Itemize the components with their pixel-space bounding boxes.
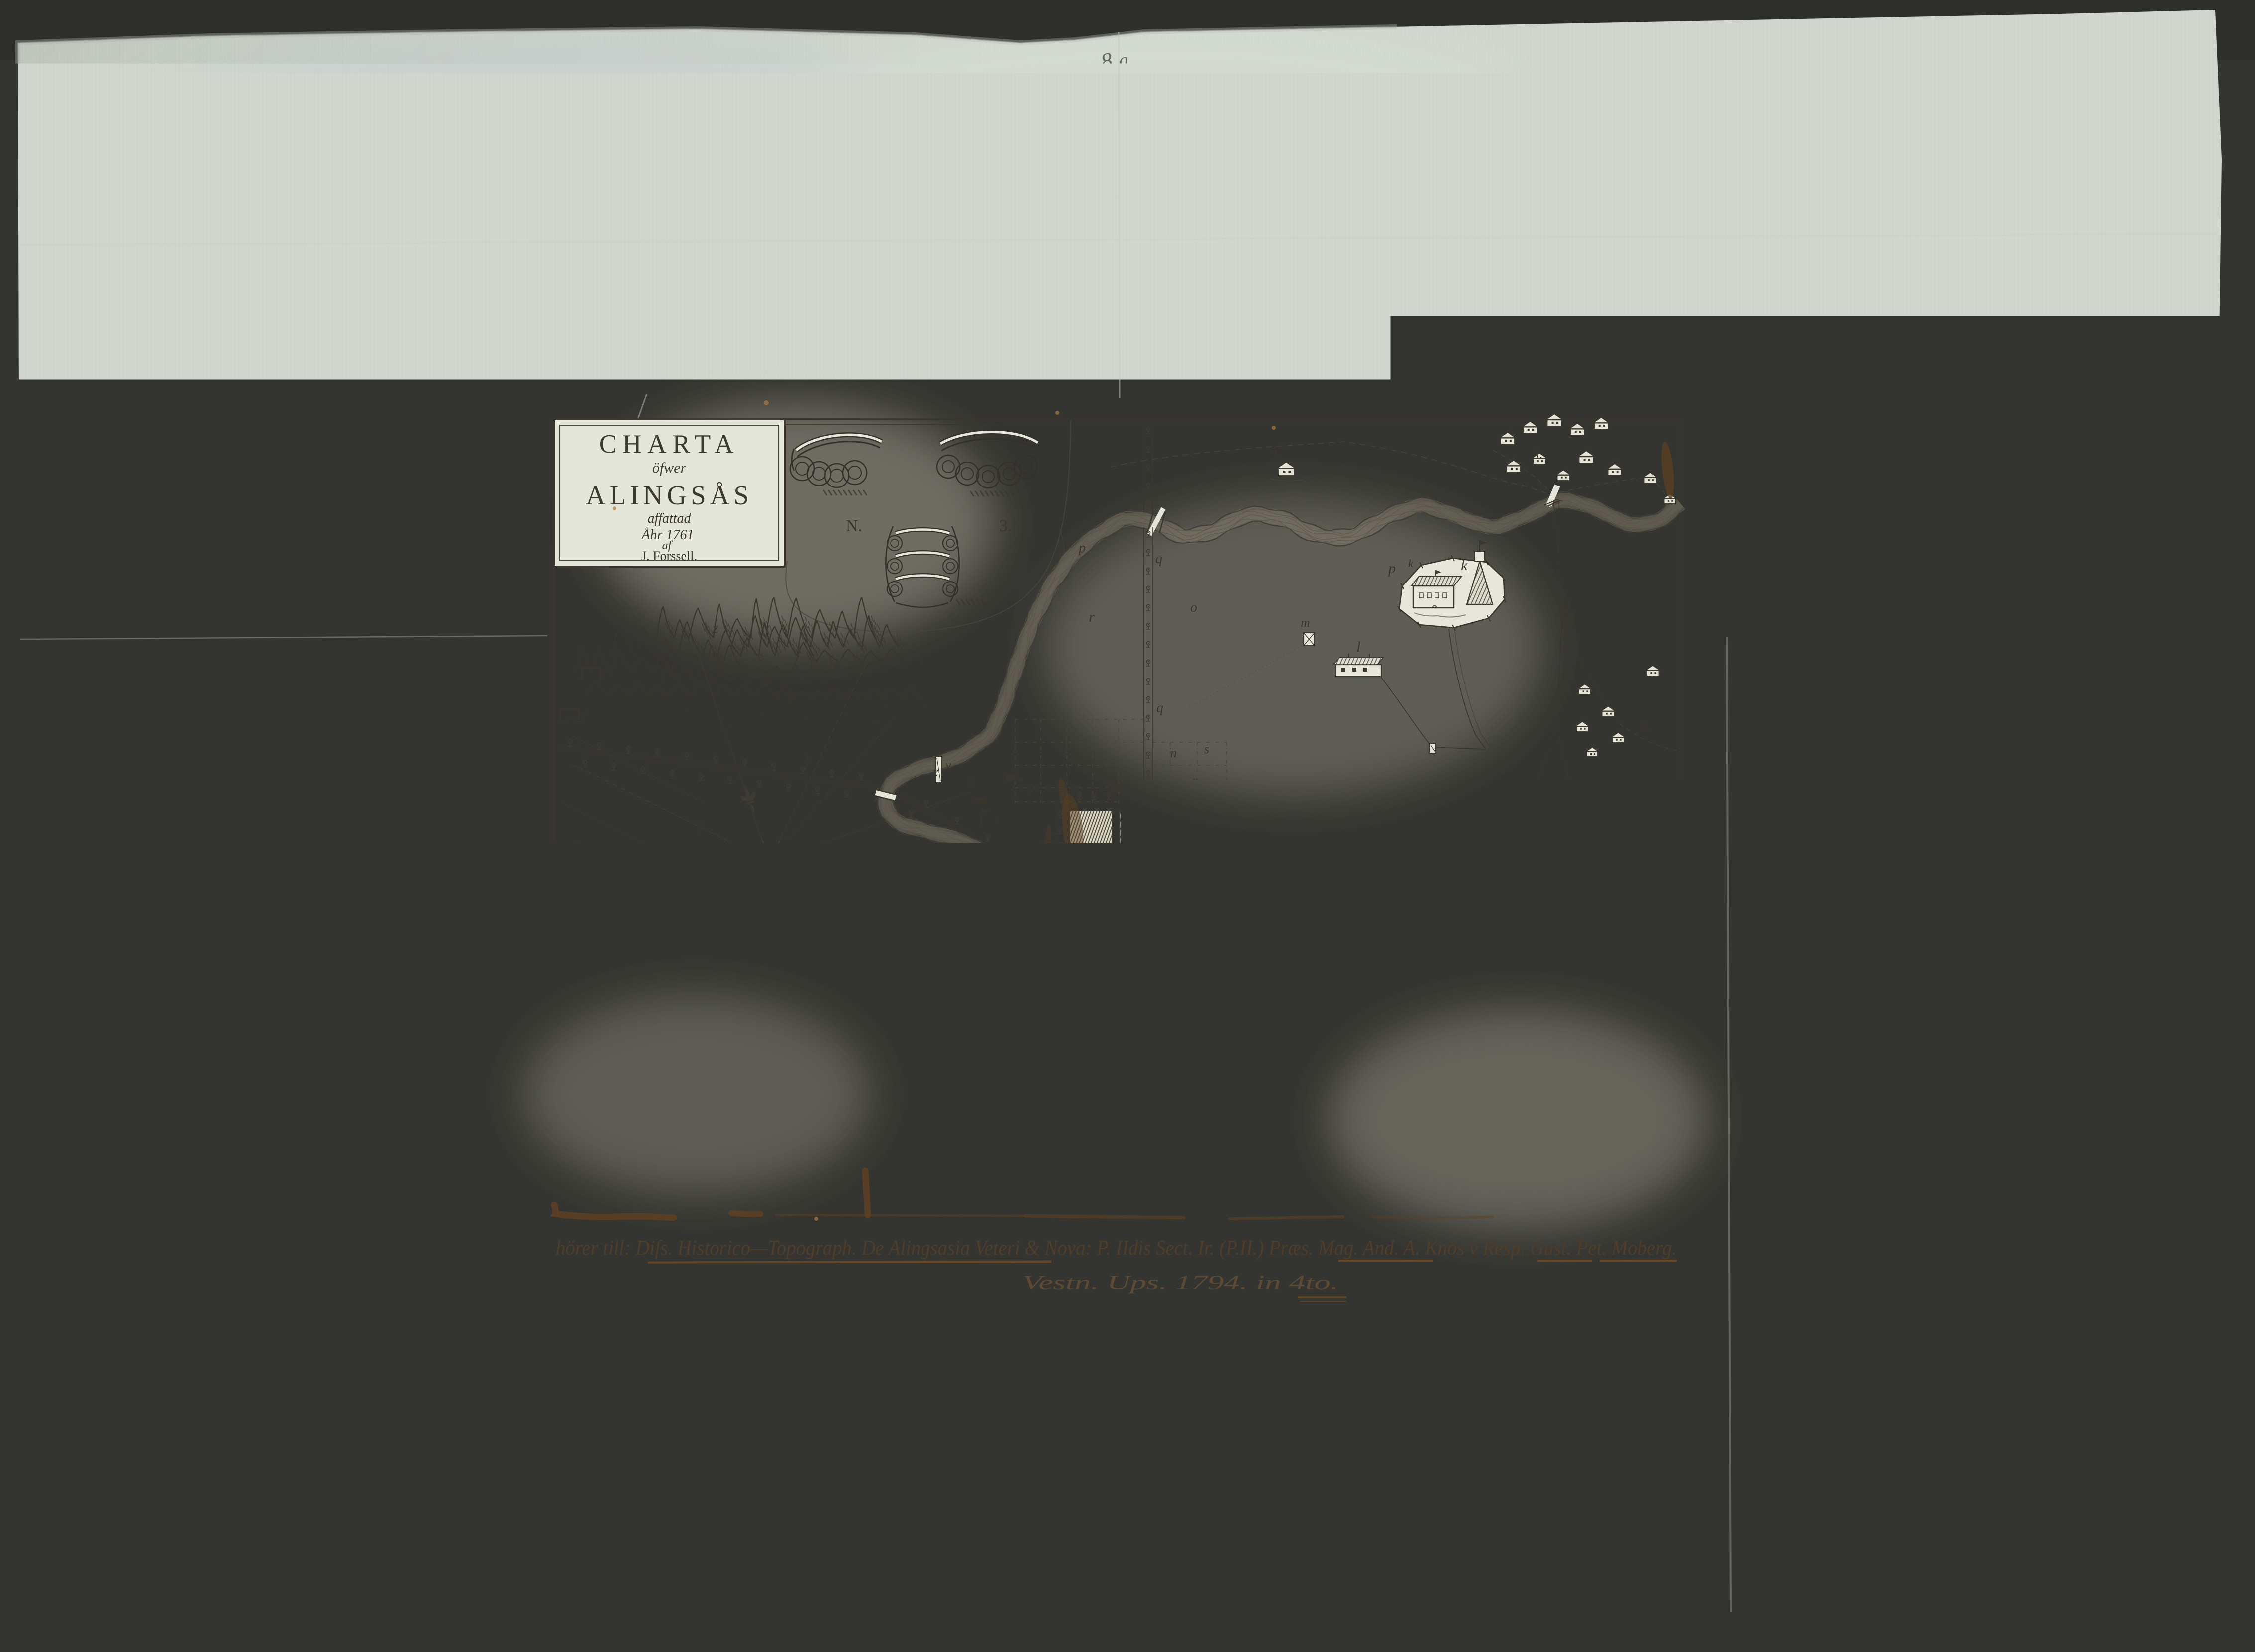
svg-text:R: R <box>1190 942 1196 950</box>
svg-text:i: i <box>1491 828 1495 844</box>
svg-text:K: K <box>1324 988 1330 997</box>
svg-text:a°: a° <box>565 712 575 725</box>
svg-text:G: G <box>1139 845 1145 854</box>
svg-text:Vestn. Ups. 1794. in 4to.: Vestn. Ups. 1794. in 4to. <box>1023 1271 1338 1294</box>
svg-text:L: L <box>1170 1039 1175 1048</box>
svg-text:CHARTA: CHARTA <box>599 430 739 459</box>
svg-text:q: q <box>1157 813 1164 828</box>
svg-text:y: y <box>696 815 706 834</box>
svg-text:o°: o° <box>561 1075 572 1088</box>
svg-text:6.: 6. <box>1640 718 1652 736</box>
svg-text:Svenskt alnemätt.: Svenskt alnemätt. <box>1375 1138 1492 1153</box>
svg-text:H: H <box>1444 906 1450 914</box>
svg-text:v: v <box>945 758 951 772</box>
svg-text:G: G <box>1439 843 1445 851</box>
svg-text:O: O <box>1245 879 1251 887</box>
svg-text:ALINGSÅS: ALINGSÅS <box>586 480 753 510</box>
svg-text:800: 800 <box>1613 1112 1628 1123</box>
svg-text:A: A <box>1200 870 1209 882</box>
svg-text:T: T <box>1087 1062 1095 1077</box>
svg-text:3.: 3. <box>999 517 1012 535</box>
svg-text:s: s <box>1095 783 1100 798</box>
svg-text:a°: a° <box>578 708 589 721</box>
svg-text:k: k <box>1461 557 1468 574</box>
svg-text:BIBLIOTHECA ROSENHANEANA: BIBLIOTHECA ROSENHANEANA <box>1999 1528 2197 1541</box>
svg-text:d: d <box>1259 1143 1265 1156</box>
svg-text:i: i <box>1566 594 1570 610</box>
svg-text:n: n <box>1192 774 1199 788</box>
svg-text:C: C <box>1240 936 1250 954</box>
svg-text:d: d <box>1524 1127 1531 1141</box>
svg-text:t: t <box>994 810 998 825</box>
svg-text:öfwer: öfwer <box>652 460 687 476</box>
svg-text:z: z <box>947 1004 953 1019</box>
svg-text:AKADEMIENS BIBLIOTEK: AKADEMIENS BIBLIOTEK <box>2036 1508 2161 1519</box>
svg-text:N: N <box>1369 1009 1375 1018</box>
svg-text:M: M <box>1447 1008 1454 1017</box>
svg-text:n: n <box>1199 775 1206 789</box>
svg-text:M: M <box>1449 939 1456 947</box>
svg-text:T: T <box>1184 1062 1192 1077</box>
svg-text:Y: Y <box>1075 989 1081 998</box>
svg-text:p: p <box>1078 540 1086 556</box>
svg-text:T: T <box>1087 1008 1095 1024</box>
svg-text:D: D <box>1297 970 1303 978</box>
svg-text:i: i <box>1538 763 1542 779</box>
svg-text:D: D <box>1132 971 1138 979</box>
svg-text:I: I <box>1343 971 1346 979</box>
svg-text:n: n <box>1170 809 1177 824</box>
svg-text:hörer till: Diſs. Historico—To: hörer till: Diſs. Historico—Topograph. D… <box>556 1237 1677 1260</box>
svg-text:I: I <box>1463 970 1465 978</box>
svg-text:T: T <box>1136 1062 1144 1077</box>
svg-text:E: E <box>1237 1056 1245 1070</box>
svg-text:O: O <box>1250 829 1256 838</box>
svg-text:o: o <box>593 1106 598 1116</box>
svg-text:C: C <box>1239 1006 1248 1021</box>
svg-text:g: g <box>1668 1014 1675 1030</box>
svg-text:C: C <box>876 1170 884 1183</box>
svg-text:M: M <box>1448 868 1455 876</box>
svg-text:s: s <box>1037 726 1042 740</box>
svg-text:k: k <box>1408 557 1414 570</box>
svg-text:a°: a° <box>623 843 633 855</box>
svg-text:n: n <box>1170 746 1177 760</box>
svg-text:R: R <box>1194 869 1200 877</box>
svg-text:P: P <box>1225 869 1230 877</box>
svg-text:y: y <box>804 749 813 768</box>
svg-text:N: N <box>1368 869 1374 877</box>
svg-text:K. VITTERHETS HISTORIE OCH ANT: K. VITTERHETS HISTORIE OCH ANTIKVITETS <box>1995 1489 2202 1500</box>
svg-text:J. Forssell.: J. Forssell. <box>641 549 697 563</box>
svg-text:300: 300 <box>1399 1112 1414 1123</box>
svg-text:S: S <box>1125 872 1129 880</box>
svg-text:N.: N. <box>846 517 862 535</box>
svg-text:L: L <box>1424 1036 1429 1045</box>
svg-text:N: N <box>736 1106 747 1123</box>
svg-text:u: u <box>969 774 976 788</box>
svg-text:T: T <box>1136 1008 1144 1024</box>
svg-text:T: T <box>1280 1008 1288 1024</box>
svg-text:L: L <box>1314 1038 1319 1047</box>
svg-text:100: 100 <box>1314 1112 1328 1123</box>
svg-text:x: x <box>932 765 938 779</box>
svg-text:700: 700 <box>1570 1112 1585 1123</box>
svg-text:s: s <box>1026 782 1031 797</box>
svg-text:p: p <box>1387 560 1396 577</box>
svg-text:g: g <box>1590 800 1597 817</box>
svg-text:o: o <box>748 1105 753 1115</box>
svg-text:A. Kyrkan. B. tillämnad Rådstu: A. Kyrkan. B. tillämnad Rådstugu-tomt. C… <box>557 1325 1664 1348</box>
svg-text:H: H <box>1140 909 1146 917</box>
svg-text:4.: 4. <box>1270 441 1282 459</box>
svg-text:landskyrka. l. Kyrkoherde Bost: landskyrka. l. Kyrkoherde Boställe. m. S… <box>558 1419 1668 1441</box>
svg-text:F: F <box>1059 864 1063 873</box>
svg-text:Berg. å. Nolhaga Säteri. ä. Tr: Berg. å. Nolhaga Säteri. ä. Trivskole. ö… <box>558 1465 1653 1488</box>
svg-text:500: 500 <box>1485 1112 1499 1123</box>
svg-text:G. Holgatan. H. Stora Gatan. I: G. Holgatan. H. Stora Gatan. I. K. L. Lå… <box>558 1349 1667 1371</box>
svg-text:h: h <box>1509 933 1516 950</box>
svg-text:e: e <box>1585 1103 1591 1117</box>
svg-text:A. Åkerman Sc.: A. Åkerman Sc. <box>1604 1198 1679 1209</box>
svg-text:H: H <box>1343 908 1349 916</box>
svg-text:o: o <box>1190 600 1197 615</box>
svg-text:N: N <box>581 1107 592 1124</box>
svg-text:400: 400 <box>1442 1112 1456 1123</box>
svg-text:Stadens åkrar. e. Stadens Quar: Stadens åkrar. e. Stadens Quarn. f. Byvä… <box>558 1395 1672 1418</box>
svg-text:l: l <box>1356 639 1360 655</box>
svg-text:q: q <box>1156 700 1163 716</box>
svg-text:funnen vid Nolhaga Berg om 3½: funnen vid Nolhaga Berg om 3½ lods vigt,… <box>558 1497 1633 1520</box>
svg-text:G: G <box>1364 844 1370 853</box>
svg-text:Cfr. ips. Diſs. pag. 18,19. no: Cfr. ips. Diſs. pag. 18,19. not.(u) <box>998 1529 1276 1552</box>
svg-text:d: d <box>1340 1127 1347 1141</box>
svg-text:Vestg.& Dalsl.8a: Vestg.& Dalsl.8a <box>2042 1545 2153 1560</box>
svg-text:V: V <box>1260 1037 1266 1046</box>
svg-text:s: s <box>1204 742 1209 756</box>
svg-text:T: T <box>1280 1062 1288 1077</box>
svg-text:g: g <box>1648 834 1655 850</box>
svg-text:C: C <box>1240 990 1245 999</box>
svg-text:200: 200 <box>1356 1112 1371 1123</box>
svg-text:m: m <box>1301 615 1310 630</box>
svg-text:z: z <box>712 620 718 636</box>
svg-text:kallade hönsgårdet. s. Plantag: kallade hönsgårdet. s. Plantage för Toba… <box>558 1442 1670 1464</box>
svg-text:P: P <box>1230 819 1234 828</box>
svg-text:50: 50 <box>1292 1112 1302 1123</box>
svg-text:600: 600 <box>1528 1112 1542 1123</box>
svg-text:5.: 5. <box>1532 446 1543 462</box>
svg-text:I: I <box>1101 972 1103 981</box>
svg-text:q: q <box>1155 551 1162 567</box>
svg-text:U: U <box>1217 986 1223 995</box>
svg-text:a°: a° <box>571 837 581 849</box>
svg-text:a: a <box>1212 1112 1218 1125</box>
svg-text:X: X <box>1075 944 1081 952</box>
svg-text:K: K <box>1145 989 1151 998</box>
svg-text:h: h <box>1671 931 1678 948</box>
svg-text:Q: Q <box>1212 855 1220 867</box>
svg-text:a: a <box>600 667 606 680</box>
svg-text:b: b <box>907 1144 915 1162</box>
svg-text:r: r <box>1089 609 1095 625</box>
svg-text:F: F <box>1479 1008 1483 1017</box>
svg-text:affattad: affattad <box>647 511 691 526</box>
svg-text:kallas Fredriksplan. U. V. X.: kallas Fredriksplan. U. V. X. Y. Bryggor… <box>558 1372 1669 1394</box>
svg-text:D: D <box>1483 1096 1489 1104</box>
svg-text:N: N <box>1368 940 1374 948</box>
svg-text:N: N <box>1253 996 1259 1005</box>
svg-text:b: b <box>1137 1161 1145 1178</box>
svg-text:g: g <box>1628 957 1636 973</box>
svg-text:T: T <box>1184 1008 1192 1024</box>
